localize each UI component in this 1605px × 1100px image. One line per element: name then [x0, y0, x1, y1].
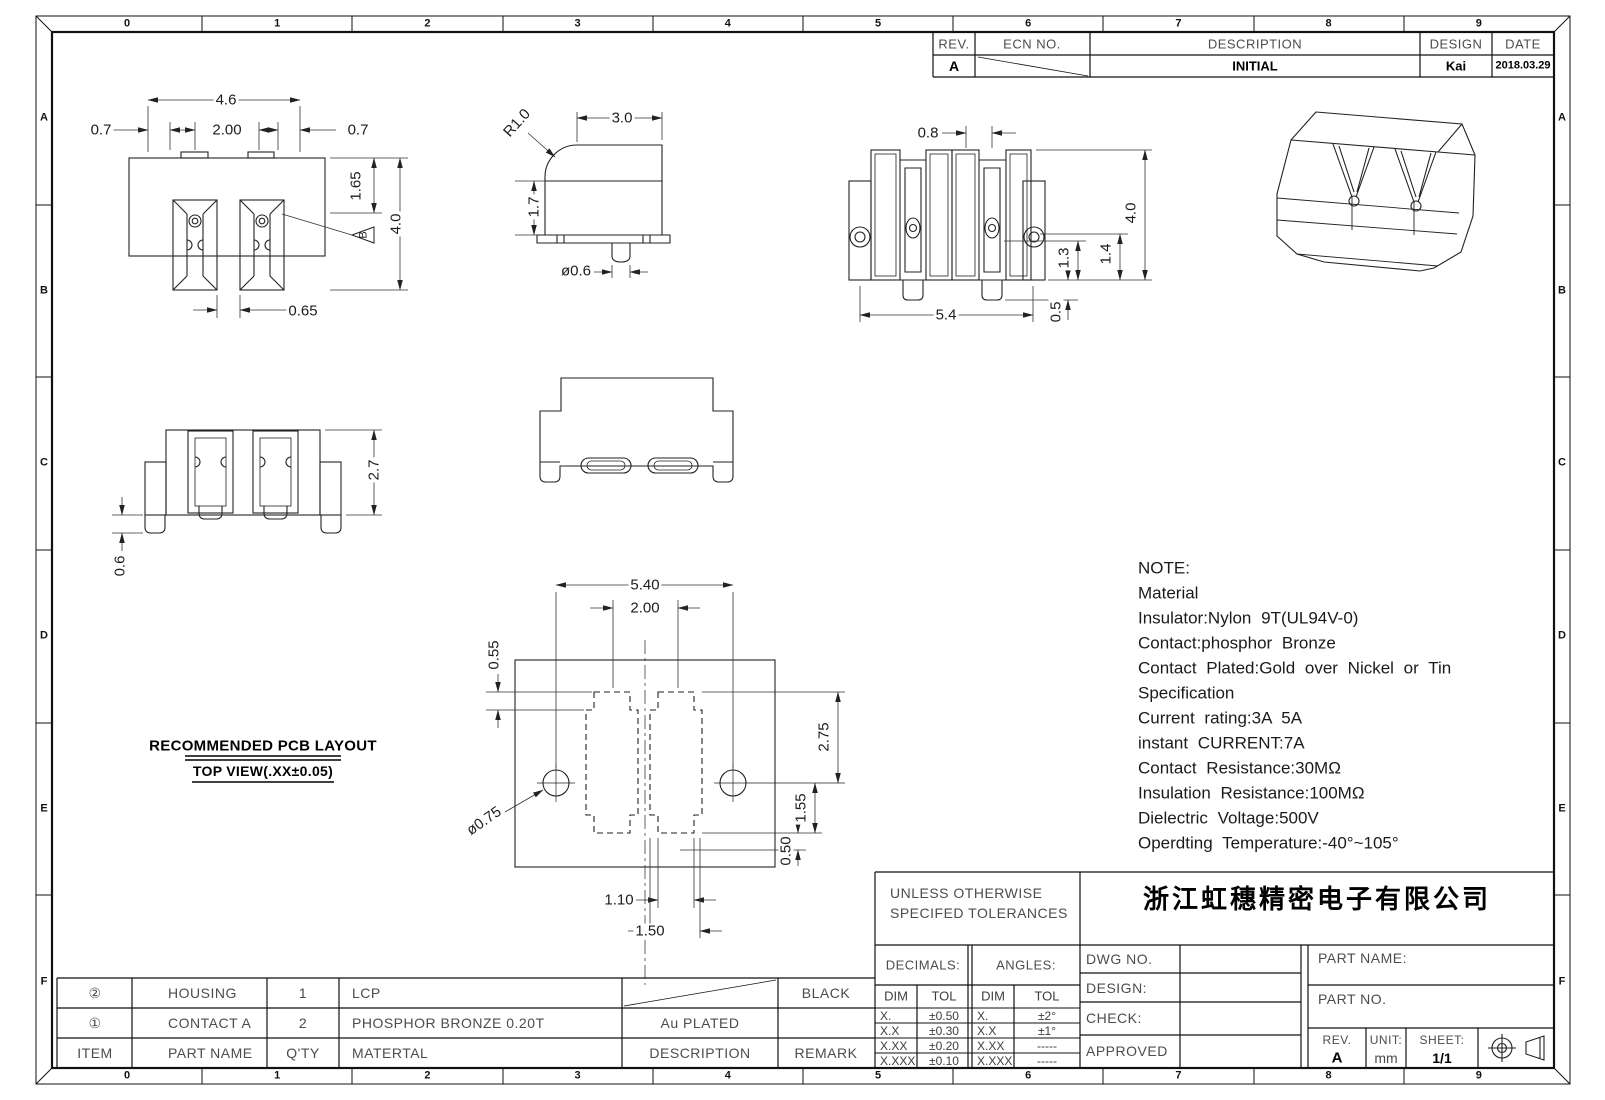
- dim-side-height: 1.7: [527, 195, 542, 220]
- border-column-label: 4: [725, 19, 731, 30]
- decimals-dim-header: DIM: [884, 990, 908, 1003]
- dwg-no-label: DWG NO.: [1086, 952, 1153, 966]
- ang-dim-3: X.XXX: [977, 1055, 1012, 1067]
- view-flag-b: B: [359, 231, 370, 238]
- border-row-label: D: [1558, 631, 1566, 642]
- bom-qty-2: 1: [299, 986, 307, 1000]
- border-column-label: 0: [124, 1071, 130, 1082]
- border-column-label: 5: [875, 19, 881, 30]
- note-line: Contact Plated:Gold over Nickel or Tin: [1138, 660, 1451, 677]
- border-column-label: 5: [875, 1071, 881, 1082]
- bom-material-2: LCP: [352, 986, 381, 1000]
- drawing-sheet: REV. ECN NO. DESCRIPTION DESIGN DATE A I…: [0, 0, 1605, 1100]
- dim-side-pin: ø0.6: [559, 264, 593, 279]
- dim-back-b: 1.4: [1099, 242, 1114, 267]
- rev-label: REV.: [1323, 1034, 1352, 1046]
- tolerance-title-1: UNLESS OTHERWISE: [890, 886, 1042, 900]
- border-column-label: 2: [424, 1071, 430, 1082]
- ang-dim-2: X.XX: [977, 1040, 1004, 1052]
- dim-pcb-h3: 0.50: [779, 834, 794, 867]
- rev-description: INITIAL: [1232, 60, 1278, 73]
- side-view-geometry: [537, 145, 670, 262]
- border-column-label: 3: [575, 1071, 581, 1082]
- bom-header-remark: REMARK: [795, 1046, 858, 1060]
- border-column-label: 6: [1025, 19, 1031, 30]
- dim-bottom-leg: 0.6: [113, 554, 128, 579]
- sheet-label: SHEET:: [1419, 1034, 1464, 1046]
- back-view-geometry: [849, 150, 1045, 300]
- tolerance-title-2: SPECIFED TOLERANCES: [890, 906, 1068, 920]
- note-line: Contact Resistance:30MΩ: [1138, 760, 1341, 777]
- border-column-label: 2: [424, 19, 430, 30]
- dec-tol-1: ±0.30: [929, 1025, 959, 1037]
- dim-pcb-h2: 1.55: [794, 791, 809, 824]
- border-column-label: 8: [1326, 19, 1332, 30]
- dim-front-pitch: 2.00: [210, 123, 243, 138]
- ang-dim-1: X.X: [977, 1025, 996, 1037]
- ecn-header: ECN NO.: [1003, 38, 1061, 51]
- dim-back-slot: 0.8: [916, 126, 941, 141]
- sheet-frame: [36, 16, 1570, 1084]
- rev-header: REV.: [938, 38, 969, 51]
- border-row-label: A: [1558, 113, 1566, 124]
- bom-header-description: DESCRIPTION: [649, 1046, 750, 1060]
- bom-partname-2: HOUSING: [168, 986, 237, 1000]
- front-view-geometry: [129, 152, 374, 290]
- dim-pcb-h1: 2.75: [817, 720, 832, 753]
- ang-tol-1: ±1°: [1038, 1025, 1056, 1037]
- isometric-view-geometry: [1277, 112, 1475, 271]
- border-column-label: 7: [1175, 19, 1181, 30]
- decimals-tol-header: TOL: [931, 990, 956, 1003]
- border-row-label: E: [40, 803, 47, 814]
- border-row-label: B: [40, 285, 48, 296]
- decimals-label: DECIMALS:: [886, 959, 961, 972]
- ang-dim-0: X.: [977, 1010, 988, 1022]
- rev-value: A: [949, 59, 959, 73]
- border-column-label: 1: [274, 19, 280, 30]
- angles-dim-header: DIM: [981, 990, 1005, 1003]
- design-header: DESIGN: [1430, 38, 1483, 51]
- angles-label: ANGLES:: [996, 959, 1056, 972]
- bom-qty-1: 2: [299, 1016, 307, 1030]
- dim-back-width: 5.4: [934, 308, 959, 323]
- check-label: CHECK:: [1086, 1011, 1142, 1025]
- design-label: DESIGN:: [1086, 981, 1147, 995]
- border-column-label: 8: [1326, 1071, 1332, 1082]
- description-header: DESCRIPTION: [1208, 38, 1302, 51]
- bom-description-1: Au PLATED: [661, 1016, 740, 1030]
- dim-front-left: 0.7: [89, 123, 114, 138]
- border-column-label: 1: [274, 1071, 280, 1082]
- dim-pcb-pitch: 2.00: [628, 601, 661, 616]
- part-no-label: PART NO.: [1318, 992, 1387, 1006]
- dec-tol-0: ±0.50: [929, 1010, 959, 1022]
- note-line: instant CURRENT:7A: [1138, 735, 1305, 752]
- note-line: Operdting Temperature:-40°~105°: [1138, 835, 1399, 852]
- border-column-label: 6: [1025, 1071, 1031, 1082]
- dim-front-height: 4.0: [389, 212, 404, 237]
- date-header: DATE: [1505, 38, 1541, 51]
- border-row-label: B: [1558, 285, 1566, 296]
- dim-back-a: 1.3: [1057, 246, 1072, 271]
- bom-partname-1: CONTACT A: [168, 1016, 251, 1030]
- dec-dim-0: X.: [880, 1010, 891, 1022]
- ang-tol-0: ±2°: [1038, 1010, 1056, 1022]
- dim-front-right: 0.7: [346, 123, 371, 138]
- rev-date: 2018.03.29: [1495, 61, 1550, 72]
- border-row-label: D: [40, 631, 48, 642]
- unit-value: mm: [1374, 1051, 1397, 1065]
- border-column-label: 0: [124, 19, 130, 30]
- dec-dim-1: X.X: [880, 1025, 899, 1037]
- angles-tol-header: TOL: [1034, 990, 1059, 1003]
- dim-front-step: 1.65: [349, 169, 364, 202]
- border-row-label: C: [1558, 458, 1566, 469]
- dim-back-tail: 0.5: [1049, 300, 1064, 325]
- note-line: Insulation Resistance:100MΩ: [1138, 785, 1365, 802]
- rev-designer: Kai: [1446, 60, 1466, 73]
- dim-front-slot: 0.65: [286, 304, 319, 319]
- pcb-layout-subtitle: TOP VIEW(.XX±0.05): [193, 764, 333, 778]
- note-line: Insulator:Nylon 9T(UL94V-0): [1138, 610, 1358, 627]
- dim-back-height: 4.0: [1124, 201, 1139, 226]
- pcb-layout-title: RECOMMENDED PCB LAYOUT: [149, 739, 377, 754]
- note-line: Contact:phosphor Bronze: [1138, 635, 1336, 652]
- bottom-view-geometry: [145, 430, 341, 533]
- bom-material-1: PHOSPHOR BRONZE 0.20T: [352, 1016, 545, 1030]
- approved-label: APPROVED: [1086, 1044, 1168, 1058]
- note-line: Specification: [1138, 685, 1234, 702]
- border-column-label: 4: [725, 1071, 731, 1082]
- ang-tol-3: -----: [1037, 1055, 1057, 1067]
- projection-symbol-icon: [1488, 1034, 1544, 1062]
- dim-pcb-edge: 0.55: [487, 638, 502, 671]
- unit-label: UNIT:: [1370, 1034, 1403, 1046]
- border-column-label: 9: [1476, 1071, 1482, 1082]
- bom-header-partname: PART NAME: [168, 1046, 253, 1060]
- border-row-label: F: [1559, 976, 1566, 987]
- border-row-label: E: [1558, 803, 1565, 814]
- rev-current: A: [1332, 1051, 1343, 1066]
- border-column-label: 7: [1175, 1071, 1181, 1082]
- dim-pcb-pad2: 1.50: [633, 924, 666, 939]
- bom-item-1: ①: [88, 1016, 101, 1030]
- border-row-label: C: [40, 458, 48, 469]
- ang-tol-2: -----: [1037, 1040, 1057, 1052]
- dec-dim-3: X.XXX: [880, 1055, 915, 1067]
- sheet-value: 1/1: [1432, 1051, 1451, 1065]
- dec-tol-3: ±0.10: [929, 1055, 959, 1067]
- border-column-label: 9: [1476, 19, 1482, 30]
- border-row-label: F: [41, 976, 48, 987]
- top-view-geometry: [540, 378, 733, 482]
- dim-pcb-pad1: 1.10: [602, 893, 635, 908]
- bom-header-item: ITEM: [77, 1046, 112, 1060]
- note-line: Current rating:3A 5A: [1138, 710, 1302, 727]
- dim-front-width: 4.6: [214, 93, 239, 108]
- dec-tol-2: ±0.20: [929, 1040, 959, 1052]
- dim-side-depth: 3.0: [610, 111, 635, 126]
- note-line: NOTE:: [1138, 560, 1190, 577]
- dim-bottom-height: 2.7: [367, 458, 382, 483]
- border-row-label: A: [40, 113, 48, 124]
- bom-header-material: MATERTAL: [352, 1046, 428, 1060]
- border-column-label: 3: [575, 19, 581, 30]
- note-line: Material: [1138, 585, 1198, 602]
- dec-dim-2: X.XX: [880, 1040, 907, 1052]
- part-name-label: PART NAME:: [1318, 951, 1407, 965]
- bom-item-2: ②: [88, 986, 101, 1000]
- drawing-linework: [0, 0, 1605, 1100]
- dim-pcb-width: 5.40: [628, 578, 661, 593]
- bom-header-qty: Q'TY: [286, 1046, 319, 1060]
- company-name: 浙江虹穗精密电子有限公司: [1143, 886, 1491, 912]
- note-line: Dielectric Voltage:500V: [1138, 810, 1319, 827]
- bom-remark-2: BLACK: [802, 986, 850, 1000]
